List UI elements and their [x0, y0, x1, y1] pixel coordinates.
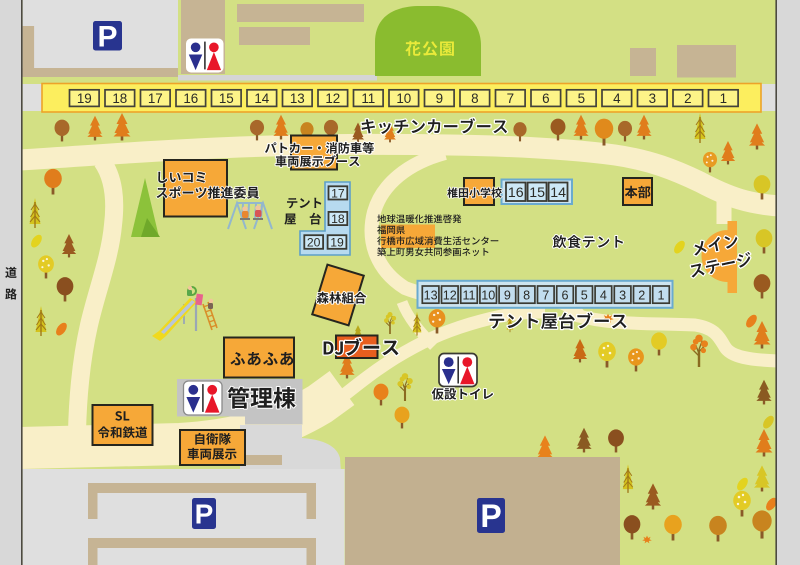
- svg-text:15: 15: [219, 91, 234, 106]
- svg-text:3: 3: [619, 288, 626, 302]
- svg-text:P: P: [195, 499, 214, 530]
- svg-text:P: P: [480, 498, 501, 534]
- svg-text:2: 2: [684, 91, 691, 106]
- svg-text:10: 10: [481, 288, 495, 302]
- svg-text:17: 17: [148, 91, 163, 106]
- svg-text:17: 17: [331, 186, 345, 200]
- svg-text:20: 20: [307, 235, 321, 249]
- svg-text:8: 8: [471, 91, 478, 106]
- svg-text:9: 9: [436, 91, 443, 106]
- svg-text:14: 14: [550, 185, 566, 201]
- svg-text:9: 9: [504, 288, 511, 302]
- svg-text:13: 13: [424, 288, 438, 302]
- svg-text:6: 6: [561, 288, 568, 302]
- svg-text:15: 15: [529, 185, 545, 201]
- svg-text:7: 7: [507, 91, 514, 106]
- svg-text:12: 12: [443, 288, 457, 302]
- svg-text:1: 1: [720, 91, 727, 106]
- svg-text:11: 11: [462, 288, 475, 302]
- svg-text:10: 10: [396, 91, 411, 106]
- svg-text:18: 18: [112, 91, 127, 106]
- svg-text:6: 6: [542, 91, 549, 106]
- svg-text:16: 16: [508, 185, 524, 201]
- svg-text:1: 1: [657, 288, 664, 302]
- svg-text:5: 5: [578, 91, 585, 106]
- svg-text:19: 19: [77, 91, 92, 106]
- svg-text:4: 4: [613, 91, 621, 106]
- svg-text:P: P: [97, 21, 117, 54]
- svg-text:4: 4: [600, 288, 607, 302]
- svg-text:14: 14: [254, 91, 269, 106]
- svg-text:8: 8: [523, 288, 530, 302]
- svg-text:16: 16: [183, 91, 198, 106]
- svg-text:2: 2: [638, 288, 645, 302]
- svg-text:13: 13: [290, 91, 305, 106]
- svg-text:11: 11: [361, 91, 375, 106]
- svg-text:7: 7: [542, 288, 549, 302]
- svg-text:5: 5: [581, 288, 588, 302]
- svg-text:12: 12: [325, 91, 340, 106]
- svg-text:19: 19: [330, 235, 344, 249]
- svg-text:3: 3: [649, 91, 656, 106]
- svg-text:18: 18: [331, 212, 345, 226]
